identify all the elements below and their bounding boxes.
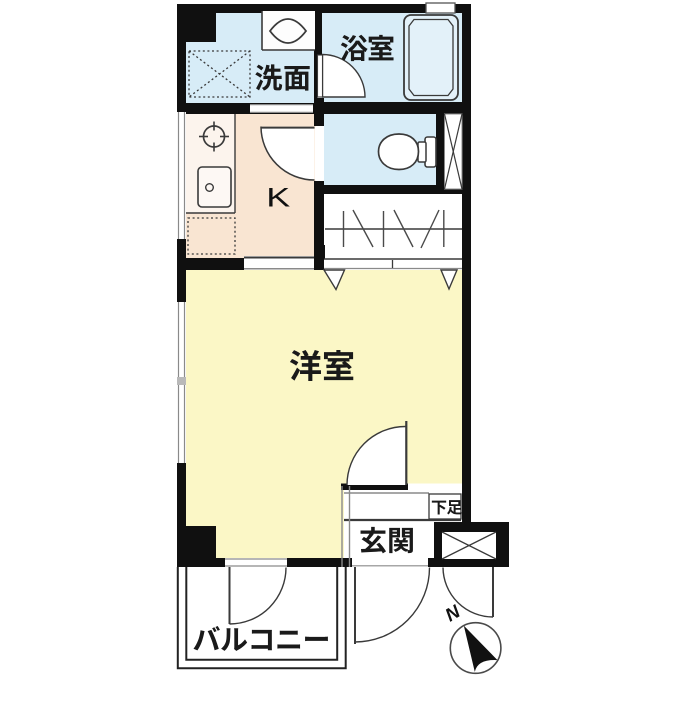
svg-text:K: K xyxy=(266,182,290,213)
